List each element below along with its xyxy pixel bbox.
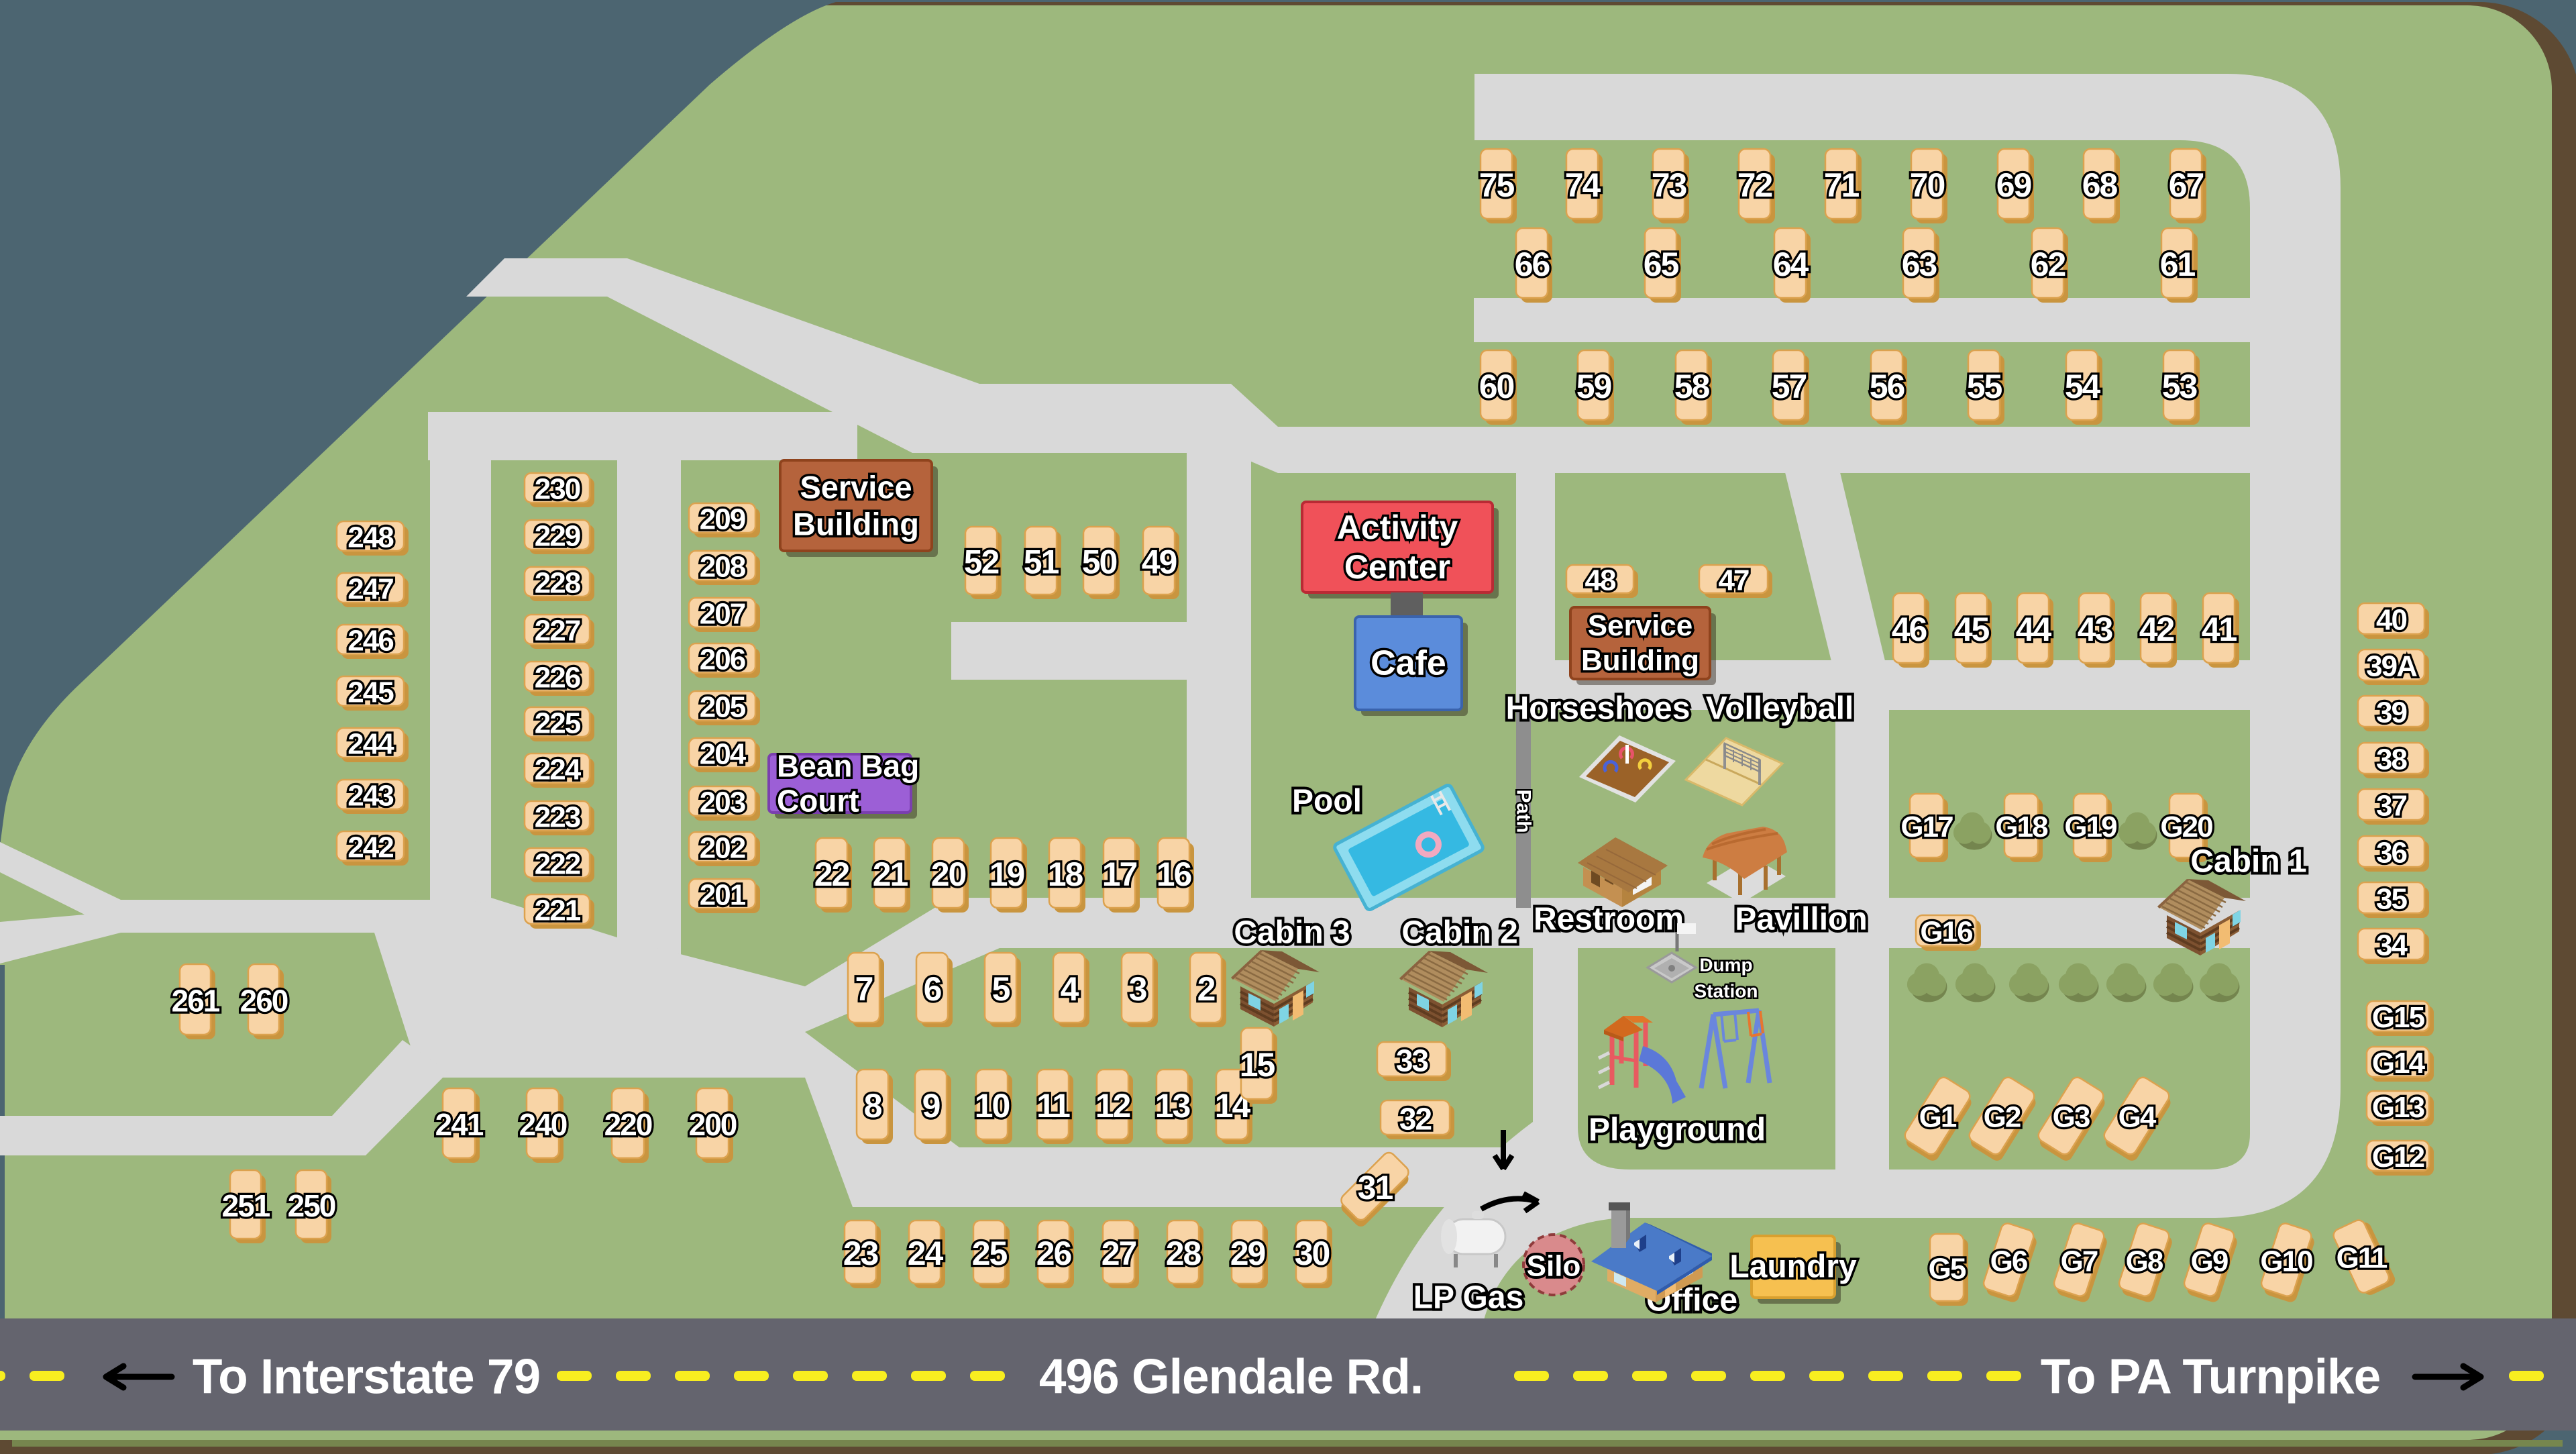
svg-text:20: 20	[931, 855, 966, 893]
svg-text:248: 248	[347, 521, 394, 554]
svg-text:12: 12	[1095, 1087, 1130, 1125]
svg-text:35: 35	[2376, 883, 2407, 916]
svg-text:53: 53	[2162, 368, 2197, 405]
svg-text:Cabin 3: Cabin 3	[1234, 915, 1350, 951]
svg-text:G4: G4	[2118, 1101, 2157, 1134]
svg-text:203: 203	[700, 786, 745, 819]
svg-text:223: 223	[535, 801, 580, 834]
svg-text:22: 22	[814, 855, 849, 893]
svg-text:34: 34	[2376, 929, 2408, 962]
svg-text:67: 67	[2169, 166, 2204, 204]
svg-text:37: 37	[2376, 790, 2406, 823]
svg-text:245: 245	[347, 676, 394, 709]
svg-text:Cabin 2: Cabin 2	[1401, 915, 1517, 951]
svg-text:Horseshoes: Horseshoes	[1506, 691, 1690, 727]
svg-text:Activity: Activity	[1337, 509, 1458, 546]
svg-text:Restroom: Restroom	[1534, 902, 1684, 937]
svg-text:74: 74	[1565, 166, 1601, 204]
svg-text:496 Glendale Rd.: 496 Glendale Rd.	[1039, 1350, 1423, 1404]
svg-text:23: 23	[843, 1235, 878, 1272]
svg-text:To Interstate 79: To Interstate 79	[193, 1350, 540, 1404]
svg-text:Building: Building	[793, 507, 919, 542]
svg-text:Laundry: Laundry	[1729, 1249, 1857, 1285]
svg-text:46: 46	[1892, 611, 1927, 648]
svg-text:201: 201	[700, 879, 746, 912]
svg-text:204: 204	[700, 738, 747, 771]
svg-text:18: 18	[1048, 855, 1083, 893]
svg-text:Volleyball: Volleyball	[1706, 691, 1854, 727]
svg-text:58: 58	[1674, 368, 1710, 405]
svg-text:Silo: Silo	[1527, 1250, 1581, 1283]
svg-text:Cabin 1: Cabin 1	[2190, 844, 2306, 880]
svg-text:G12: G12	[2372, 1141, 2424, 1174]
svg-text:246: 246	[347, 625, 393, 658]
svg-text:15: 15	[1240, 1046, 1275, 1084]
svg-text:57: 57	[1772, 368, 1807, 405]
svg-text:21: 21	[873, 855, 908, 893]
svg-text:240: 240	[519, 1107, 567, 1142]
svg-text:225: 225	[535, 707, 581, 740]
svg-text:208: 208	[700, 551, 746, 584]
svg-text:68: 68	[2082, 166, 2118, 204]
svg-text:247: 247	[347, 573, 393, 606]
svg-text:G3: G3	[2053, 1101, 2090, 1134]
svg-text:44: 44	[2016, 611, 2052, 648]
svg-text:19: 19	[989, 855, 1024, 893]
svg-text:209: 209	[700, 503, 745, 536]
svg-text:60: 60	[1479, 368, 1514, 405]
svg-text:56: 56	[1870, 368, 1904, 405]
svg-text:8: 8	[864, 1087, 882, 1125]
svg-text:73: 73	[1652, 166, 1686, 204]
svg-text:5: 5	[992, 970, 1010, 1008]
svg-text:45: 45	[1954, 611, 1990, 648]
svg-text:61: 61	[2160, 246, 2196, 283]
svg-text:202: 202	[700, 832, 745, 865]
svg-text:69: 69	[1996, 166, 2031, 204]
svg-text:2: 2	[1197, 970, 1215, 1008]
svg-text:54: 54	[2065, 368, 2101, 405]
svg-text:229: 229	[535, 520, 580, 553]
svg-text:Building: Building	[1581, 644, 1699, 677]
svg-text:27: 27	[1102, 1235, 1136, 1272]
svg-text:33: 33	[1396, 1043, 1428, 1078]
svg-text:75: 75	[1479, 166, 1515, 204]
svg-text:39: 39	[2376, 696, 2406, 729]
svg-text:42: 42	[2139, 611, 2174, 648]
svg-text:49: 49	[1142, 543, 1177, 581]
svg-text:Court: Court	[777, 784, 859, 819]
svg-text:9: 9	[922, 1087, 940, 1125]
svg-text:227: 227	[535, 615, 580, 647]
svg-text:G13: G13	[2372, 1091, 2424, 1124]
svg-text:3: 3	[1129, 970, 1146, 1008]
svg-text:206: 206	[700, 643, 745, 676]
svg-text:30: 30	[1295, 1235, 1330, 1272]
svg-text:222: 222	[535, 848, 580, 881]
svg-text:28: 28	[1166, 1235, 1201, 1272]
svg-text:Service: Service	[800, 469, 912, 505]
svg-text:207: 207	[700, 598, 745, 631]
svg-text:43: 43	[2078, 611, 2112, 648]
svg-text:G2: G2	[1984, 1101, 2021, 1134]
svg-text:G9: G9	[2191, 1245, 2228, 1278]
svg-text:51: 51	[1024, 543, 1059, 581]
svg-text:32: 32	[1399, 1102, 1432, 1137]
svg-text:Playground: Playground	[1589, 1112, 1766, 1148]
svg-text:6: 6	[924, 970, 941, 1008]
svg-text:242: 242	[347, 831, 393, 864]
svg-text:13: 13	[1155, 1087, 1190, 1125]
svg-text:41: 41	[2202, 611, 2237, 648]
svg-text:250: 250	[288, 1188, 335, 1223]
svg-text:G10: G10	[2260, 1245, 2312, 1278]
svg-text:224: 224	[535, 754, 582, 786]
svg-text:38: 38	[2376, 743, 2407, 776]
svg-text:221: 221	[535, 894, 581, 927]
svg-text:Pavillion: Pavillion	[1735, 902, 1867, 937]
svg-text:G5: G5	[1929, 1253, 1966, 1286]
svg-text:G7: G7	[2061, 1245, 2098, 1278]
svg-text:Center: Center	[1344, 548, 1450, 586]
svg-text:226: 226	[535, 662, 580, 694]
svg-text:G20: G20	[2160, 811, 2212, 843]
svg-text:261: 261	[172, 984, 220, 1019]
svg-text:64: 64	[1773, 246, 1809, 283]
svg-text:25: 25	[972, 1235, 1008, 1272]
svg-text:70: 70	[1910, 166, 1945, 204]
svg-text:48: 48	[1585, 564, 1616, 597]
svg-text:G1: G1	[1919, 1101, 1957, 1134]
svg-text:G8: G8	[2126, 1245, 2163, 1278]
svg-text:G14: G14	[2372, 1047, 2426, 1080]
svg-text:LP Gas: LP Gas	[1413, 1280, 1524, 1316]
svg-text:31: 31	[1358, 1169, 1393, 1206]
svg-text:65: 65	[1644, 246, 1679, 283]
svg-text:G19: G19	[2064, 811, 2116, 843]
svg-text:26: 26	[1036, 1235, 1071, 1272]
svg-text:200: 200	[689, 1107, 737, 1142]
svg-text:G16: G16	[1920, 916, 1972, 949]
svg-text:72: 72	[1737, 166, 1772, 204]
svg-text:Service: Service	[1588, 609, 1693, 642]
svg-text:Cafe: Cafe	[1371, 644, 1446, 683]
svg-text:10: 10	[975, 1087, 1010, 1125]
svg-text:241: 241	[435, 1107, 484, 1142]
svg-text:220: 220	[604, 1107, 652, 1142]
svg-text:G6: G6	[1990, 1245, 2027, 1278]
svg-text:Bean Bag: Bean Bag	[777, 749, 919, 784]
svg-text:G17: G17	[1900, 811, 1953, 843]
svg-text:11: 11	[1036, 1087, 1070, 1125]
svg-text:243: 243	[347, 780, 393, 813]
svg-text:29: 29	[1230, 1235, 1265, 1272]
svg-text:55: 55	[1967, 368, 2002, 405]
svg-text:36: 36	[2376, 837, 2406, 870]
svg-text:To PA Turnpike: To PA Turnpike	[2041, 1350, 2380, 1404]
svg-text:4: 4	[1061, 970, 1079, 1008]
svg-text:244: 244	[347, 728, 394, 761]
svg-text:Station: Station	[1695, 981, 1758, 1002]
svg-text:17: 17	[1102, 855, 1137, 893]
svg-text:71: 71	[1824, 166, 1860, 204]
svg-text:Path: Path	[1513, 789, 1535, 833]
svg-text:230: 230	[535, 473, 580, 506]
svg-text:G18: G18	[1995, 811, 2048, 843]
svg-text:39A: 39A	[2366, 650, 2417, 683]
svg-text:205: 205	[700, 691, 746, 724]
svg-text:59: 59	[1576, 368, 1611, 405]
svg-text:G11: G11	[2337, 1242, 2387, 1275]
svg-text:Pool: Pool	[1292, 784, 1362, 819]
svg-text:251: 251	[222, 1188, 270, 1223]
svg-text:16: 16	[1157, 855, 1191, 893]
svg-text:52: 52	[964, 543, 999, 581]
svg-text:63: 63	[1902, 246, 1937, 283]
svg-text:66: 66	[1515, 246, 1550, 283]
svg-text:50: 50	[1082, 543, 1117, 581]
svg-text:40: 40	[2376, 604, 2406, 637]
svg-text:228: 228	[535, 567, 581, 600]
svg-text:47: 47	[1719, 564, 1749, 597]
svg-text:260: 260	[240, 984, 288, 1019]
svg-text:7: 7	[855, 970, 873, 1008]
svg-text:G15: G15	[2372, 1001, 2425, 1034]
svg-text:62: 62	[2031, 246, 2065, 283]
svg-text:Dump: Dump	[1699, 955, 1752, 976]
svg-text:24: 24	[908, 1235, 944, 1272]
